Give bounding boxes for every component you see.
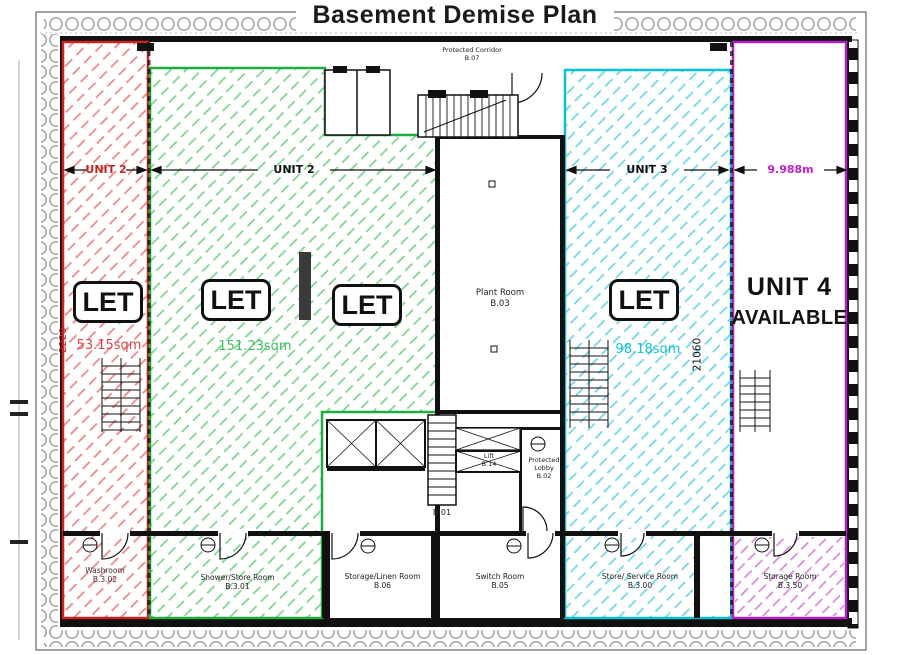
unit3-area-label: 98.18sqm bbox=[600, 342, 696, 358]
switch-room-label: Switch Room B.05 bbox=[445, 572, 555, 591]
unit2-left-let-badge: LET bbox=[73, 281, 143, 323]
top-staircase bbox=[418, 90, 518, 137]
unit4-name-label: UNIT 4 bbox=[733, 272, 846, 303]
washroom-label: Washroom B.3.02 bbox=[70, 566, 140, 585]
right-scale-band bbox=[848, 40, 858, 628]
lobby-door-arc bbox=[523, 507, 547, 531]
lift-b14-label: Lift B.14 bbox=[459, 452, 519, 468]
column-bar bbox=[299, 252, 311, 320]
lift-shafts bbox=[327, 420, 425, 471]
wc-rooms bbox=[325, 66, 390, 135]
plant-room-label: Plant Room B.03 bbox=[450, 288, 550, 309]
unit3-height-dim: 21060 bbox=[691, 329, 704, 381]
unit2-main-area-label: 151.23sqm bbox=[205, 339, 305, 355]
unit4-availability-label: AVAILABLE bbox=[731, 306, 848, 331]
unit2-main-dim-label: UNIT 2 bbox=[258, 163, 330, 177]
shower-store-room-label: Shower/Store Room B.3.01 bbox=[175, 573, 300, 592]
storage-room-label: Storage Room B.3.50 bbox=[740, 572, 840, 591]
stair-b01-label: B.01 bbox=[422, 508, 462, 518]
basement-demise-plan: Basement Demise Plan UNIT 2 UNIT 2 UNIT … bbox=[0, 0, 900, 655]
protected-lobby-label: Protected Lobby B.02 bbox=[524, 456, 564, 480]
unit3-dim-label: UNIT 3 bbox=[610, 163, 684, 177]
unit2-left-area-label: 53.15sqm bbox=[66, 338, 152, 354]
storage-linen-room-label: Storage/Linen Room B.06 bbox=[335, 572, 430, 591]
fd-tag-1 bbox=[489, 181, 495, 187]
left-margin-dimension bbox=[10, 60, 28, 640]
protected-corridor-label: Protected Corridor B.07 bbox=[420, 46, 524, 62]
unit2-left-height-dim: 2220 bbox=[58, 320, 71, 360]
unit2-main-let-badge-2: LET bbox=[332, 284, 402, 326]
store-service-room-label: Store/ Service Room B.3.00 bbox=[585, 572, 695, 591]
unit3-let-badge: LET bbox=[609, 279, 679, 321]
unit4-dim-label: 9.988m bbox=[757, 163, 824, 177]
fd-tag-2 bbox=[491, 346, 497, 352]
page-title: Basement Demise Plan bbox=[296, 0, 614, 32]
unit2-main-let-badge: LET bbox=[201, 279, 271, 321]
unit2-left-dim-label: UNIT 2 bbox=[80, 163, 132, 177]
